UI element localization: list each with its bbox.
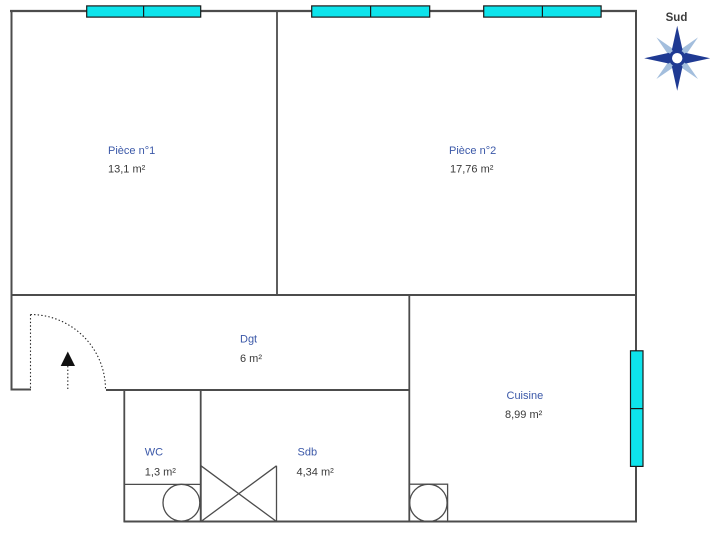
svg-text:8,99 m²: 8,99 m²	[505, 409, 543, 421]
svg-text:13,1 m²: 13,1 m²	[108, 164, 146, 176]
svg-text:6 m²: 6 m²	[240, 353, 262, 365]
svg-text:1,3 m²: 1,3 m²	[145, 467, 177, 479]
svg-text:17,76 m²: 17,76 m²	[450, 164, 494, 176]
svg-text:Sdb: Sdb	[298, 447, 318, 459]
svg-text:Pièce n°2: Pièce n°2	[449, 145, 496, 157]
svg-text:4,34 m²: 4,34 m²	[297, 467, 335, 479]
svg-text:Pièce n°1: Pièce n°1	[108, 145, 155, 157]
svg-text:Sud: Sud	[666, 12, 688, 24]
svg-text:WC: WC	[145, 447, 163, 459]
svg-text:Cuisine: Cuisine	[507, 390, 544, 402]
svg-text:Dgt: Dgt	[240, 334, 257, 346]
